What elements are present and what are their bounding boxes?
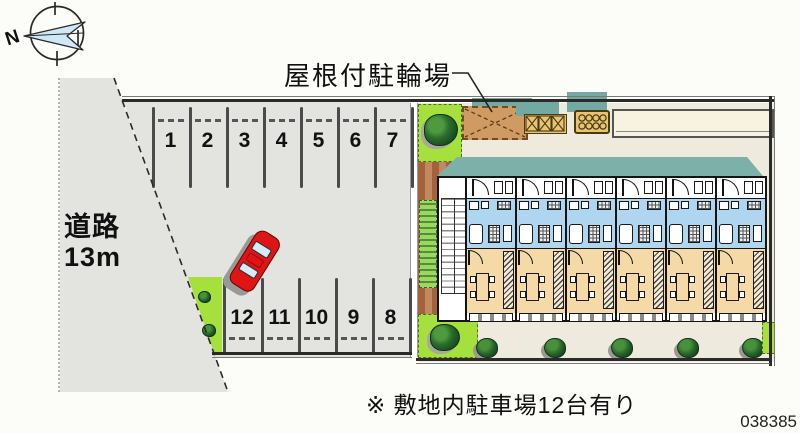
staircase (441, 198, 466, 294)
upper-walkway (612, 109, 774, 138)
car-icon (234, 228, 270, 300)
parking-boundary-bottom (212, 352, 412, 358)
storage-boxes (524, 114, 567, 134)
site-boundary-right (769, 96, 775, 366)
site-plan: 1234567 12111098 N 道路 13m 屋根付駐輪場 ※ 敷地内駐車… (0, 0, 800, 433)
building-unit (615, 178, 665, 320)
building-unit (715, 178, 765, 320)
bicycle-parking-label: 屋根付駐輪場 (284, 56, 452, 93)
roof-eave-band (437, 157, 763, 176)
building-unit (565, 178, 615, 320)
compass-rose: N (3, 2, 85, 66)
road-label: 道路 13m (64, 212, 121, 272)
site-boundary-top (122, 96, 774, 102)
building-unit (515, 178, 565, 320)
building-unit (665, 178, 715, 320)
box-shadow (567, 92, 607, 112)
walkway-strip (410, 103, 418, 357)
site-boundary-bottom (416, 358, 770, 364)
road-edge-dotted (58, 78, 60, 392)
plan-id: 038385 (733, 412, 797, 432)
meter-box (574, 110, 610, 134)
site-note: ※ 敷地内駐車場12台有り (366, 386, 637, 420)
hedge-strip (419, 200, 437, 288)
apartment-building (437, 176, 767, 322)
compass-north-label: N (3, 26, 23, 50)
building-unit (465, 178, 515, 320)
